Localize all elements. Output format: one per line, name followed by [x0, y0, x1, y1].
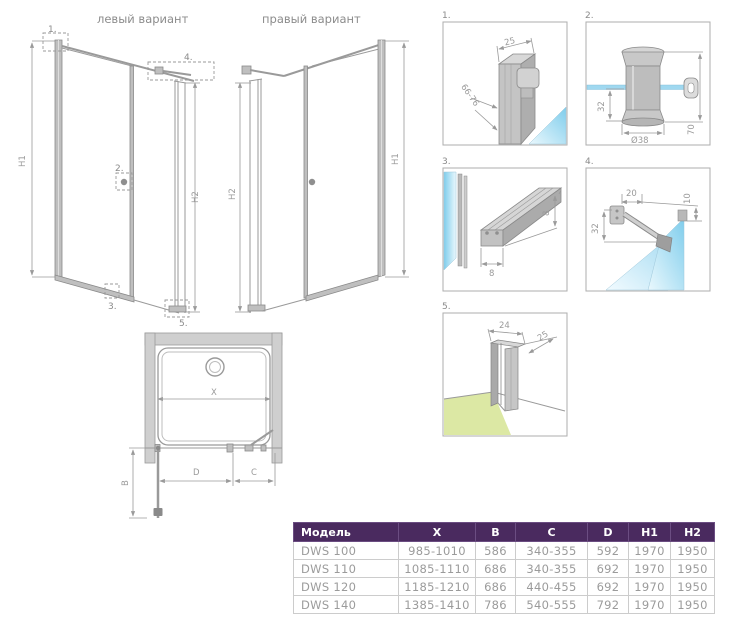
glass	[444, 172, 456, 270]
door-knob	[309, 179, 315, 185]
detail-5-number: 5.	[442, 302, 451, 312]
support-bracket	[250, 70, 284, 76]
cell-h1: 1970	[629, 560, 671, 578]
dim-20: 20	[626, 189, 637, 199]
cell-h2: 1950	[671, 560, 715, 578]
table-row-dws100: DWS 100 985-1010 586 340-355 592 1970 19…	[294, 542, 715, 560]
table-row-dws110: DWS 110 1085-1110 686 340-355 692 1970 1…	[294, 560, 715, 578]
cell-d: 592	[588, 542, 629, 560]
detail-1-marker-label: 1.	[48, 25, 57, 35]
wall-right	[272, 333, 282, 463]
wall-left	[145, 333, 155, 463]
x-dim-label: X	[211, 388, 217, 398]
header-b: B	[476, 523, 516, 542]
dim-32: 32	[597, 101, 607, 112]
d-dim-label: D	[193, 468, 200, 478]
cell-c: 340-355	[516, 542, 588, 560]
door-stile	[304, 66, 308, 298]
h2-dim-label: H2	[191, 191, 201, 203]
dim-8-height: 8	[542, 211, 552, 216]
cell-x: 1185-1210	[399, 578, 476, 596]
cell-d: 692	[588, 560, 629, 578]
dim-32: 32	[591, 223, 601, 234]
table-header-row: Модель X B C D H1 H2	[294, 523, 715, 542]
header-model: Модель	[294, 523, 399, 542]
header-h1: H1	[629, 523, 671, 542]
cell-h1: 1970	[629, 578, 671, 596]
cell-c: 540-555	[516, 596, 588, 614]
cell-h2: 1950	[671, 578, 715, 596]
header-h2: H2	[671, 523, 715, 542]
dim-70: 70	[687, 124, 697, 135]
b-dim-label: B	[121, 480, 131, 486]
detail-4-panel: 4. 20 10 32	[584, 154, 714, 294]
detail-2-panel: 2. 32 Ø38 70	[584, 8, 714, 148]
dim-10: 10	[683, 193, 693, 204]
wall-profile-channel	[491, 340, 498, 406]
cell-h1: 1970	[629, 596, 671, 614]
cell-x: 1385-1410	[399, 596, 476, 614]
detail-3-panel: 3. 8 8	[441, 154, 571, 294]
cell-d: 692	[588, 578, 629, 596]
cell-b: 686	[476, 560, 516, 578]
cell-x: 1085-1110	[399, 560, 476, 578]
detail-2-marker-label: 2.	[115, 164, 124, 174]
header-d: D	[588, 523, 629, 542]
knob-body	[626, 66, 660, 110]
h1-dim-label: H1	[18, 155, 28, 167]
door-knob	[121, 179, 127, 185]
pivot-block	[227, 444, 233, 452]
cell-c: 340-355	[516, 560, 588, 578]
cell-b: 786	[476, 596, 516, 614]
cell-model: DWS 110	[294, 560, 399, 578]
dim-8-width: 8	[489, 269, 494, 279]
detail-4-marker-label: 4.	[184, 53, 193, 63]
cell-model: DWS 140	[294, 596, 399, 614]
cell-h1: 1970	[629, 542, 671, 560]
door-knob	[154, 508, 163, 516]
detail-1-panel: 1. 25 66-76	[441, 8, 571, 148]
detail-5-panel: 5. 24 25	[441, 299, 571, 439]
spec-sheet: левый вариант правый вариант H1 H2	[0, 0, 738, 627]
right-variant-elevation-drawing: H2 H1	[228, 25, 438, 330]
left-variant-title: левый вариант	[97, 12, 188, 26]
panel-threshold	[169, 306, 186, 312]
header-c: C	[516, 523, 588, 542]
left-variant-elevation-drawing: H1 H2 1. 2. 3. 4. 5.	[8, 25, 220, 330]
cell-model: DWS 120	[294, 578, 399, 596]
cell-model: DWS 100	[294, 542, 399, 560]
bracket-block	[610, 206, 624, 224]
detail-2-number: 2.	[585, 11, 594, 21]
wall-top	[145, 333, 282, 345]
detail-3-number: 3.	[442, 157, 451, 167]
cell-c: 440-455	[516, 578, 588, 596]
plan-view-drawing: X B D C	[85, 322, 335, 547]
panel-threshold	[248, 305, 265, 311]
detail-4-number: 4.	[585, 157, 594, 167]
dim-24: 24	[499, 321, 510, 331]
top-support-bar	[62, 46, 194, 81]
cell-h2: 1950	[671, 542, 715, 560]
table-row-dws120: DWS 120 1185-1210 686 440-455 692 1970 1…	[294, 578, 715, 596]
bottom-rail	[306, 275, 378, 301]
hinge-cap	[517, 68, 539, 88]
detail-1-number: 1.	[442, 11, 451, 21]
right-variant-title: правый вариант	[262, 12, 361, 26]
h2-dim-label: H2	[228, 188, 238, 200]
header-x: X	[399, 523, 476, 542]
cell-h2: 1950	[671, 596, 715, 614]
cell-b: 586	[476, 542, 516, 560]
detail-3-marker-label: 3.	[108, 302, 117, 312]
cell-d: 792	[588, 596, 629, 614]
c-dim-label: C	[251, 468, 257, 478]
cell-x: 985-1010	[399, 542, 476, 560]
models-table: Модель X B C D H1 H2 DWS 100 985-1010 58…	[293, 522, 715, 614]
top-support-bar	[284, 43, 385, 76]
table-row-dws140: DWS 140 1385-1410 786 540-555 792 1970 1…	[294, 596, 715, 614]
bottom-rail	[55, 275, 134, 302]
cell-b: 686	[476, 578, 516, 596]
dim-38: Ø38	[631, 135, 649, 146]
h1-dim-label: H1	[391, 153, 401, 165]
